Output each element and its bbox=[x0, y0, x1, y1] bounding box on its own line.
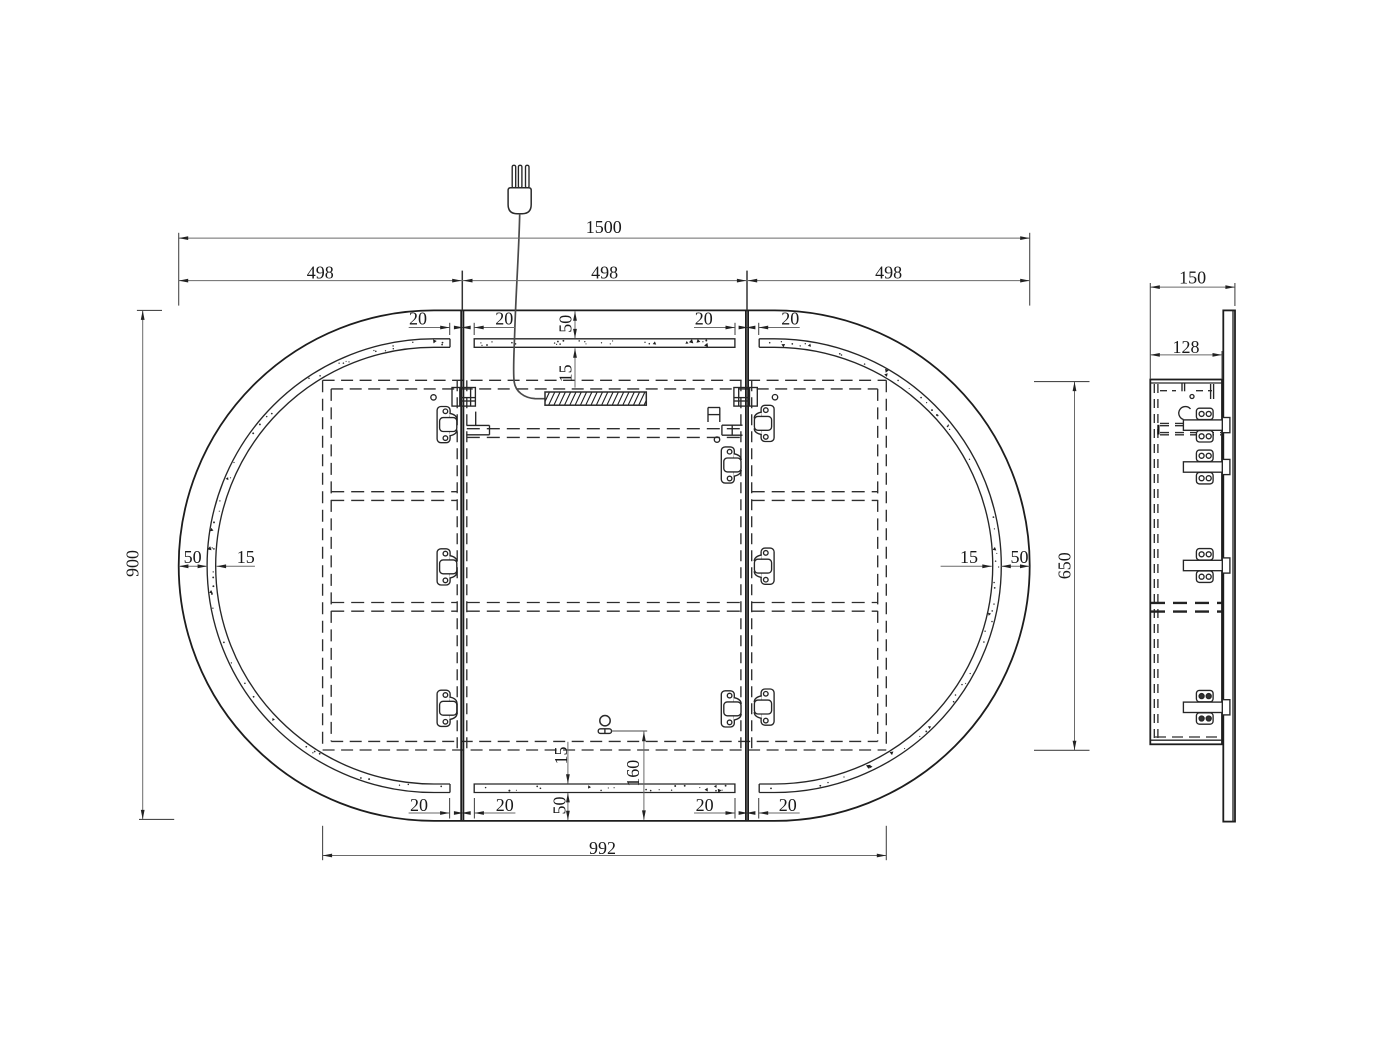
svg-text:992: 992 bbox=[589, 838, 616, 858]
svg-text:20: 20 bbox=[696, 795, 714, 815]
svg-text:20: 20 bbox=[695, 309, 713, 329]
svg-text:15: 15 bbox=[237, 547, 255, 567]
svg-text:498: 498 bbox=[591, 262, 618, 282]
svg-text:150: 150 bbox=[1179, 268, 1206, 288]
svg-text:498: 498 bbox=[307, 262, 334, 282]
svg-text:160: 160 bbox=[623, 760, 643, 787]
svg-text:20: 20 bbox=[409, 309, 427, 329]
svg-text:20: 20 bbox=[495, 309, 513, 329]
svg-text:20: 20 bbox=[779, 795, 797, 815]
svg-text:20: 20 bbox=[410, 795, 428, 815]
svg-text:20: 20 bbox=[781, 309, 799, 329]
svg-text:900: 900 bbox=[123, 550, 143, 577]
svg-text:50: 50 bbox=[556, 315, 576, 333]
svg-text:50: 50 bbox=[1011, 547, 1029, 567]
svg-text:50: 50 bbox=[184, 547, 202, 567]
svg-text:15: 15 bbox=[551, 747, 571, 765]
svg-text:15: 15 bbox=[960, 547, 978, 567]
svg-text:15: 15 bbox=[556, 364, 576, 382]
svg-text:498: 498 bbox=[875, 262, 902, 282]
svg-text:20: 20 bbox=[496, 795, 514, 815]
svg-text:650: 650 bbox=[1054, 552, 1074, 579]
svg-text:1500: 1500 bbox=[586, 217, 622, 237]
svg-text:50: 50 bbox=[550, 797, 570, 815]
svg-text:128: 128 bbox=[1173, 337, 1200, 357]
